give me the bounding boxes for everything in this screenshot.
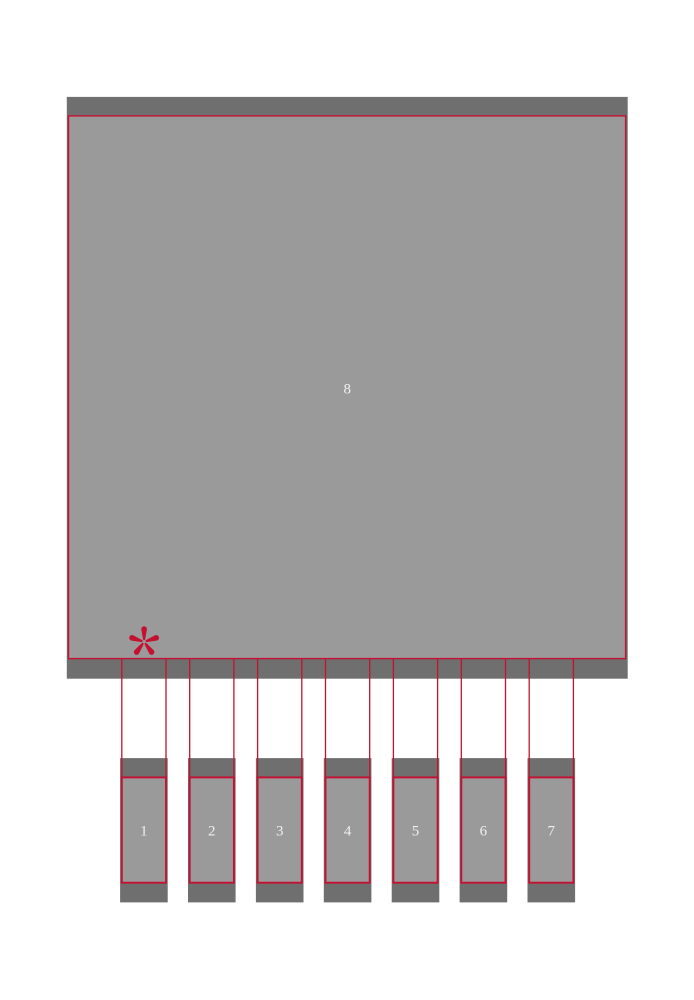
svg-text:3: 3 bbox=[276, 824, 284, 840]
svg-text:6: 6 bbox=[480, 824, 488, 840]
svg-text:5: 5 bbox=[412, 824, 420, 840]
svg-text:8: 8 bbox=[344, 381, 352, 397]
svg-text:2: 2 bbox=[208, 824, 216, 840]
svg-text:1: 1 bbox=[140, 824, 148, 840]
svg-text:4: 4 bbox=[344, 824, 352, 840]
svg-text:7: 7 bbox=[548, 824, 556, 840]
